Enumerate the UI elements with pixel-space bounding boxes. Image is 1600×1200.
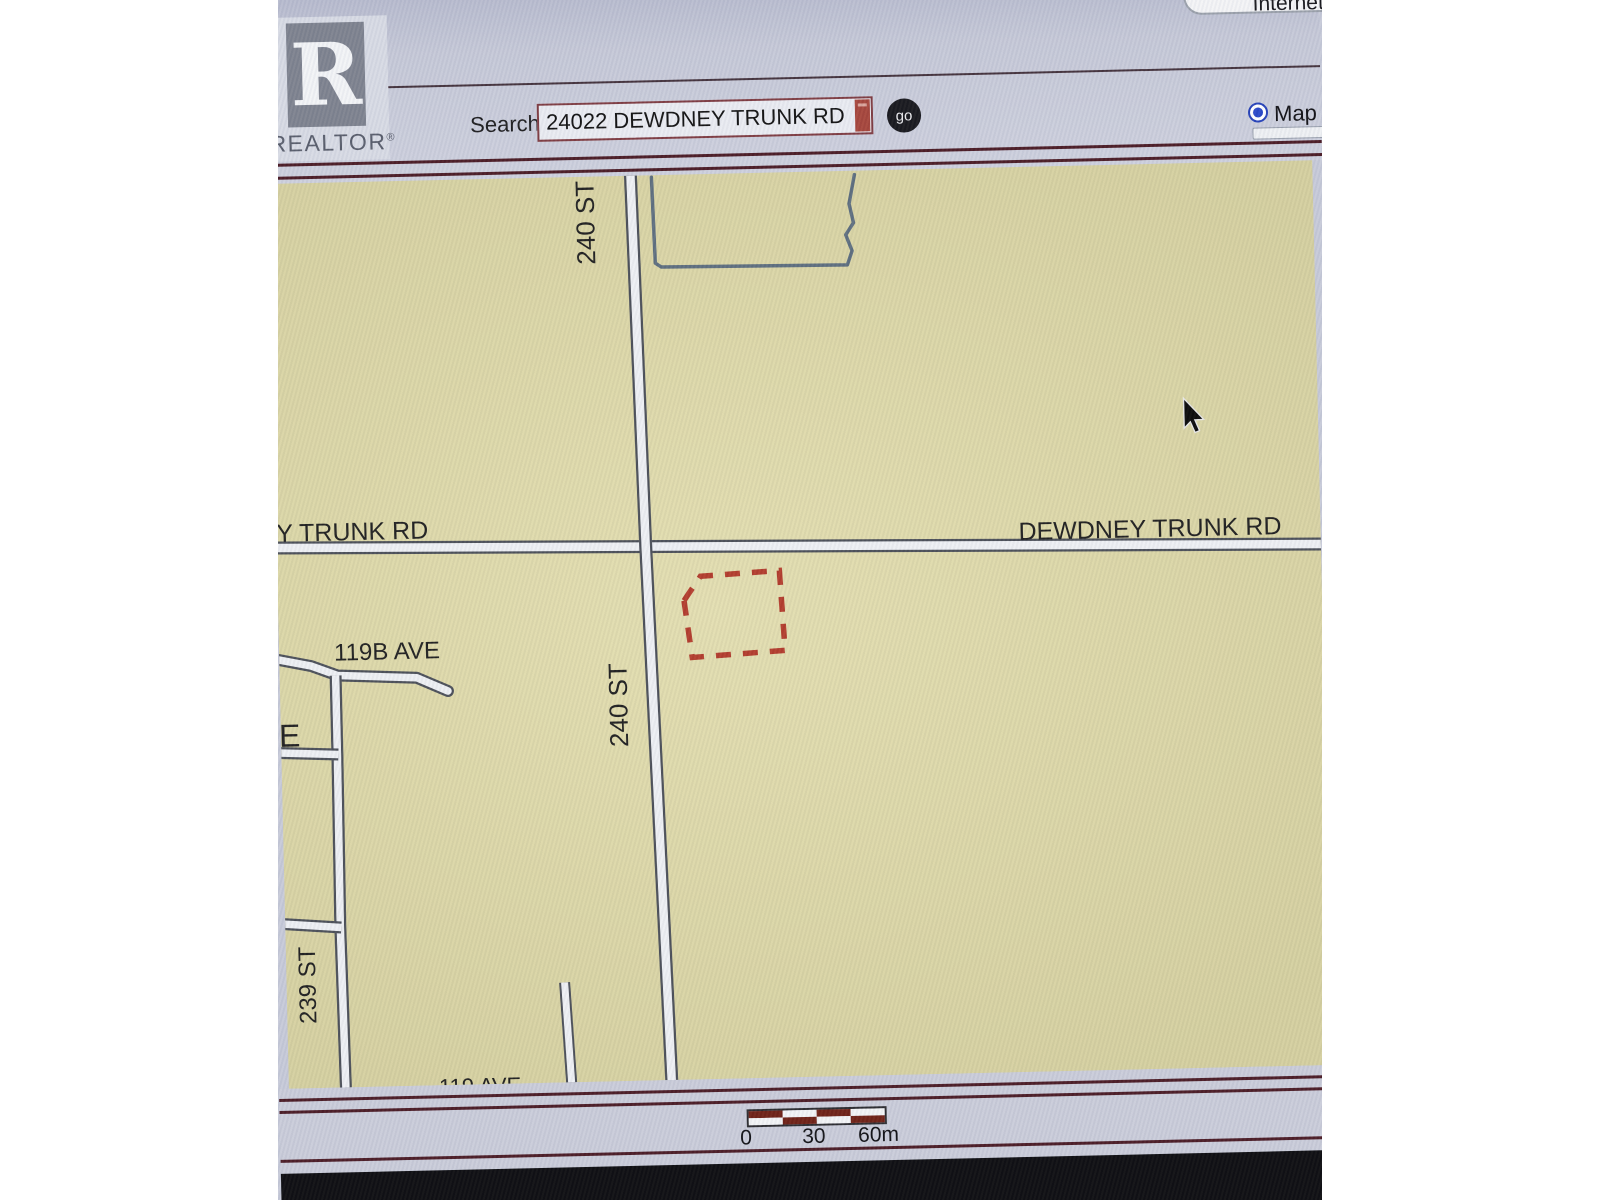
internet-tab-label: Internet — [1252, 0, 1322, 17]
road-240-st — [630, 169, 672, 1085]
road-stub-lower — [279, 922, 341, 928]
search-label: Search: — [470, 111, 546, 139]
parcel-outline — [683, 570, 785, 657]
search-input[interactable] — [539, 99, 855, 140]
map-viewport[interactable]: 240 ST DEWDNEY TRUNK RD Y TRUNK RD 119B … — [278, 160, 1322, 1088]
stream-line — [651, 173, 856, 270]
realtor-r-icon: R — [286, 22, 366, 128]
tilted-screen-content: R REALTOR® Search: go Internet Map — [278, 0, 1322, 1200]
mini-slider[interactable] — [1252, 126, 1322, 140]
map-radio-label: Map — [1274, 100, 1317, 127]
realtor-wordmark-text: REALTOR — [278, 128, 387, 157]
road-stub-bottom — [565, 982, 572, 1087]
realtor-wordmark: REALTOR® — [278, 128, 390, 158]
scale-label-0: 0 — [740, 1126, 752, 1150]
registered-symbol: ® — [386, 131, 396, 143]
label-240-st-top: 240 ST — [569, 180, 601, 265]
screenshot-canvas: R REALTOR® Search: go Internet Map — [0, 0, 1600, 1200]
scale-label-30: 30 — [802, 1125, 826, 1150]
label-119b-ave: 119B AVE — [334, 637, 440, 666]
scale-label-60m: 60m — [858, 1123, 899, 1148]
label-239-st: 239 ST — [294, 946, 323, 1024]
go-button[interactable]: go — [887, 98, 922, 133]
label-e-clipped: E — [279, 717, 301, 753]
header-divider-line — [278, 65, 1320, 91]
realtor-logo[interactable]: R REALTOR® — [278, 15, 390, 162]
search-scroll-marker[interactable] — [855, 99, 871, 131]
search-input-wrap — [537, 96, 874, 142]
mouse-cursor — [1184, 398, 1205, 433]
map-radio-button[interactable] — [1248, 102, 1268, 122]
label-dewdney-trunk-rd: DEWDNEY TRUNK RD — [1018, 512, 1282, 546]
road-239-st — [335, 676, 346, 1089]
browser-header: R REALTOR® Search: go Internet Map — [278, 0, 1322, 184]
label-240-st-mid: 240 ST — [602, 663, 634, 748]
label-y-trunk-rd-clipped: Y TRUNK RD — [278, 516, 429, 547]
screen-photo: R REALTOR® Search: go Internet Map — [278, 0, 1322, 1200]
